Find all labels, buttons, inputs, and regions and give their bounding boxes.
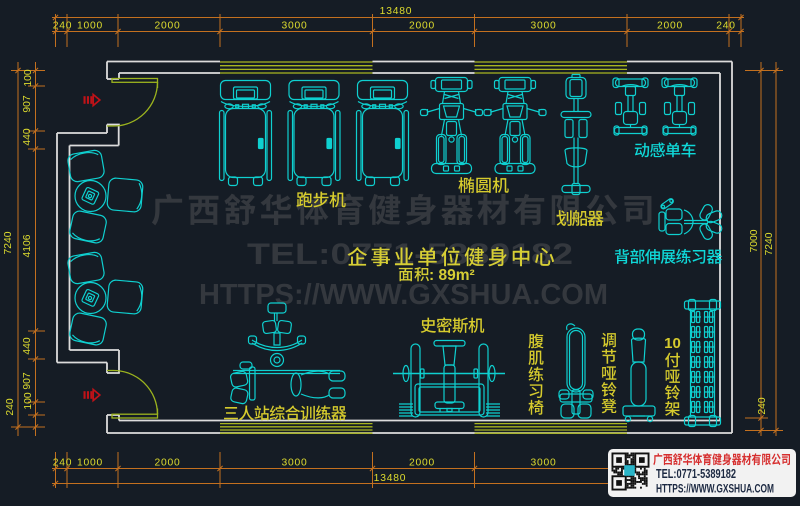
svg-text:10: 10: [664, 335, 681, 352]
svg-text:2000: 2000: [409, 458, 435, 469]
svg-text:1000: 1000: [77, 458, 103, 469]
svg-text:100: 100: [23, 392, 34, 409]
svg-text:240: 240: [757, 397, 768, 414]
svg-text:TEL:0771-5389182: TEL:0771-5389182: [656, 466, 736, 481]
svg-text:3000: 3000: [530, 21, 556, 32]
svg-text:13480: 13480: [380, 6, 413, 17]
svg-text:TEL:0771-5389182: TEL:0771-5389182: [247, 238, 573, 271]
svg-text:3000: 3000: [530, 458, 556, 469]
svg-text:2000: 2000: [657, 21, 683, 32]
svg-text:440: 440: [22, 128, 33, 145]
svg-text:4106: 4106: [22, 234, 33, 257]
svg-text:240: 240: [716, 21, 736, 32]
svg-text:: 89m²: : 89m²: [429, 267, 475, 284]
svg-text:7000: 7000: [749, 229, 760, 252]
svg-text:HTTPS://WWW.GXSHUA.COM: HTTPS://WWW.GXSHUA.COM: [199, 279, 608, 311]
svg-text:3000: 3000: [281, 21, 307, 32]
svg-text:440: 440: [22, 337, 33, 354]
svg-text:2000: 2000: [154, 21, 180, 32]
svg-text:7240: 7240: [764, 232, 775, 255]
svg-text:240: 240: [53, 458, 73, 469]
svg-text:240: 240: [5, 398, 16, 415]
svg-text:HTTPS://WWW.GXSHUA.COM: HTTPS://WWW.GXSHUA.COM: [656, 482, 774, 496]
svg-text:7240: 7240: [3, 231, 14, 254]
svg-text:13480: 13480: [374, 473, 407, 484]
svg-text:907: 907: [22, 372, 33, 389]
svg-text:3000: 3000: [281, 458, 307, 469]
svg-text:2000: 2000: [154, 458, 180, 469]
svg-text:2000: 2000: [409, 21, 435, 32]
svg-text:240: 240: [53, 21, 73, 32]
svg-text:100: 100: [23, 69, 34, 86]
svg-text:1000: 1000: [77, 21, 103, 32]
svg-text:907: 907: [22, 95, 33, 112]
